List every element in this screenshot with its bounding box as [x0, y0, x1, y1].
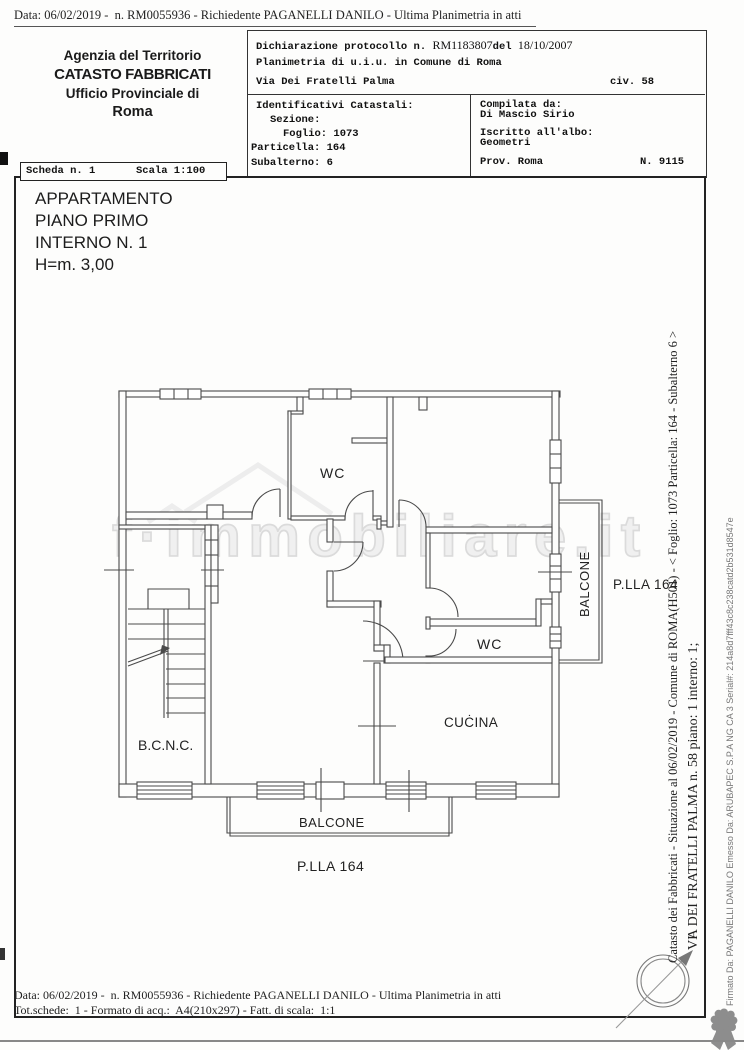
svg-text:WC: WC [320, 465, 345, 481]
svg-text:WC: WC [477, 636, 502, 652]
svg-text:BALCONE: BALCONE [577, 551, 592, 617]
svg-text:BALCONE: BALCONE [299, 815, 365, 830]
svg-text:B.C.N.C.: B.C.N.C. [138, 737, 193, 753]
svg-text:P.LLA 164: P.LLA 164 [297, 858, 364, 874]
svg-text:CUĊINA: CUĊINA [444, 715, 498, 730]
